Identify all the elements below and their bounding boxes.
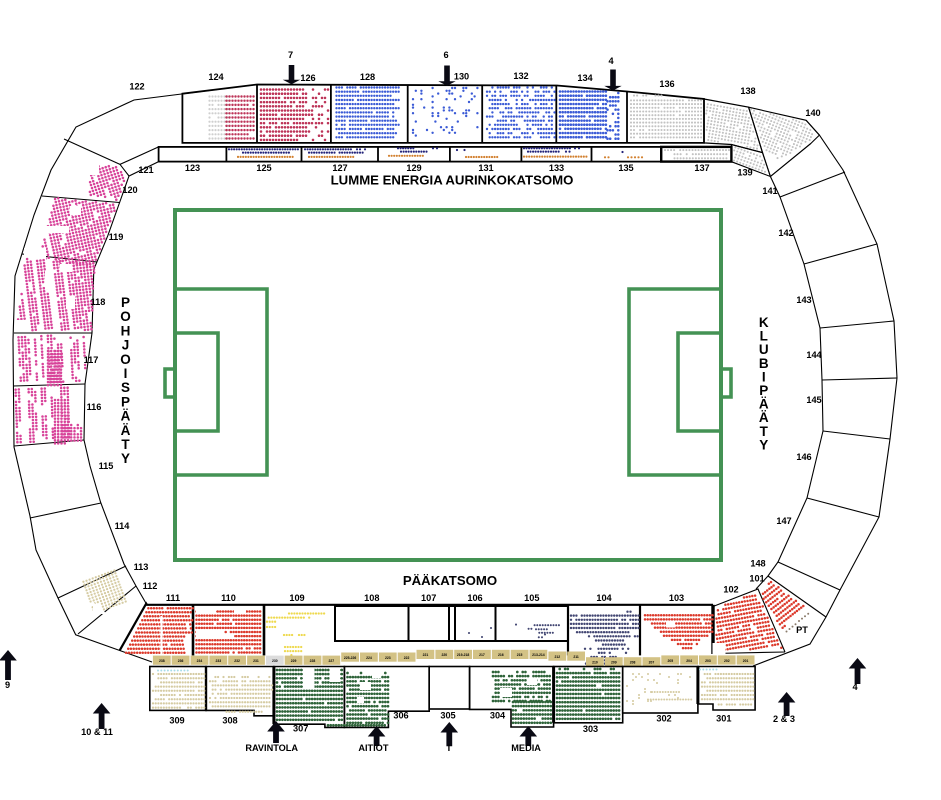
svg-text:LUMME ENERGIA AURINKOKATSOMO: LUMME ENERGIA AURINKOKATSOMO [331,173,574,188]
svg-text:110: 110 [221,593,236,603]
svg-text:106: 106 [467,593,482,603]
svg-text:143: 143 [796,295,811,305]
svg-text:205: 205 [667,659,673,663]
svg-text:125: 125 [256,163,271,173]
svg-text:4: 4 [852,682,858,692]
svg-text:216: 216 [498,653,504,657]
svg-text:204: 204 [686,659,692,663]
svg-text:142: 142 [778,228,793,238]
svg-text:7: 7 [288,50,293,60]
svg-text:130: 130 [454,72,469,82]
svg-text:146: 146 [796,452,811,462]
svg-text:109: 109 [289,593,304,603]
svg-text:141: 141 [762,186,777,196]
svg-text:136: 136 [659,79,674,89]
svg-text:Ä: Ä [121,409,131,424]
svg-text:104: 104 [596,593,612,603]
svg-text:115: 115 [99,461,114,471]
svg-text:210: 210 [592,661,598,665]
svg-text:306: 306 [393,711,408,721]
svg-text:203: 203 [705,659,711,663]
svg-text:116: 116 [87,402,102,412]
svg-text:I: I [448,743,451,753]
svg-text:211: 211 [573,655,579,659]
svg-text:223: 223 [385,656,391,660]
svg-text:PÄÄKATSOMO: PÄÄKATSOMO [403,573,497,588]
svg-text:208: 208 [630,661,636,665]
svg-text:111: 111 [166,593,180,603]
svg-text:113: 113 [134,562,149,572]
svg-text:215: 215 [517,653,523,657]
svg-text:309: 309 [169,716,184,726]
svg-text:120: 120 [122,185,137,195]
svg-text:S: S [121,380,130,395]
svg-text:303: 303 [583,724,598,734]
svg-text:Y: Y [121,451,130,466]
svg-text:T: T [121,437,130,452]
svg-text:107: 107 [421,593,436,603]
svg-text:O: O [120,352,131,367]
svg-text:217: 217 [479,653,485,657]
svg-text:9: 9 [5,680,10,690]
svg-text:P: P [121,295,130,310]
svg-text:121: 121 [138,165,153,175]
svg-text:118: 118 [91,297,106,307]
svg-text:131: 131 [478,163,493,173]
svg-text:236: 236 [178,659,184,663]
svg-text:144: 144 [806,350,822,360]
svg-text:222: 222 [404,656,410,660]
svg-text:212: 212 [554,655,560,659]
svg-text:6: 6 [443,50,448,60]
svg-text:135: 135 [618,163,633,173]
svg-text:229: 229 [291,659,297,663]
svg-text:301: 301 [716,714,731,724]
svg-text:119: 119 [109,232,124,242]
svg-text:148: 148 [750,559,765,569]
svg-text:102: 102 [723,585,738,595]
svg-text:308: 308 [222,716,237,726]
svg-text:228: 228 [310,659,316,663]
svg-text:232: 232 [234,659,240,663]
svg-text:2 & 3: 2 & 3 [773,714,795,724]
svg-text:114: 114 [115,521,131,531]
svg-text:124: 124 [208,72,224,82]
svg-text:127: 127 [332,163,347,173]
svg-text:202: 202 [724,659,730,663]
svg-text:MEDIA: MEDIA [511,743,541,753]
svg-text:219-218: 219-218 [457,653,470,657]
svg-text:133: 133 [549,163,564,173]
svg-text:230: 230 [272,659,278,663]
svg-text:132: 132 [513,71,528,81]
svg-text:231: 231 [253,659,259,663]
svg-text:227: 227 [328,659,334,663]
svg-text:O: O [120,309,131,324]
svg-text:126: 126 [300,73,315,83]
svg-text:123: 123 [185,163,200,173]
svg-text:302: 302 [656,714,671,724]
svg-text:10 & 11: 10 & 11 [81,727,113,737]
svg-text:225-226: 225-226 [344,656,357,660]
svg-text:145: 145 [806,395,821,405]
svg-text:4: 4 [608,56,614,66]
svg-text:220: 220 [441,653,447,657]
svg-text:122: 122 [129,82,144,92]
svg-text:101: 101 [749,574,764,584]
svg-text:Ä: Ä [121,423,131,438]
svg-text:209: 209 [611,661,617,665]
svg-text:137: 137 [694,163,709,173]
svg-text:RAVINTOLA: RAVINTOLA [245,743,298,753]
svg-text:134: 134 [577,73,593,83]
svg-text:238: 238 [159,659,165,663]
svg-text:112: 112 [143,581,158,591]
svg-text:147: 147 [776,516,791,526]
svg-text:J: J [122,338,130,353]
svg-text:233: 233 [215,659,221,663]
svg-text:129: 129 [406,163,421,173]
svg-text:224: 224 [366,656,372,660]
svg-text:139: 139 [737,168,752,178]
svg-text:108: 108 [364,593,379,603]
svg-text:I: I [124,366,128,381]
svg-text:103: 103 [669,593,684,603]
svg-text:304: 304 [490,711,506,721]
svg-text:P: P [121,394,130,409]
svg-text:234: 234 [197,659,203,663]
svg-text:213-214: 213-214 [532,653,545,657]
svg-text:307: 307 [293,724,308,734]
svg-text:207: 207 [649,661,655,665]
svg-text:105: 105 [524,593,539,603]
svg-text:H: H [121,323,131,338]
svg-text:201: 201 [743,659,749,663]
svg-text:PT: PT [796,625,808,635]
svg-text:140: 140 [805,108,820,118]
svg-text:Y: Y [759,437,768,452]
svg-text:138: 138 [740,86,755,96]
svg-text:221: 221 [423,653,429,657]
svg-text:AITIOT: AITIOT [358,743,388,753]
svg-text:128: 128 [360,72,375,82]
svg-text:305: 305 [440,711,455,721]
svg-text:117: 117 [84,355,99,365]
